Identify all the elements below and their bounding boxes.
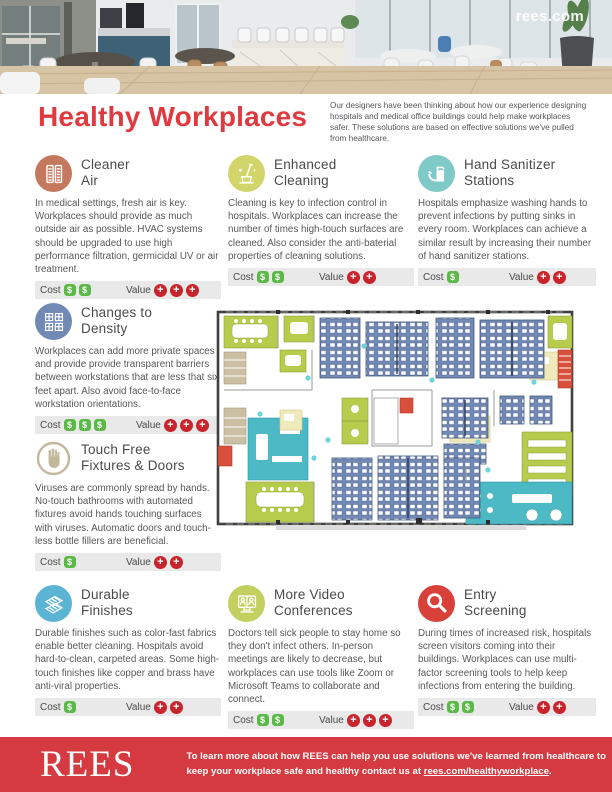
section-changes-to-density: Changes to Density Workplaces can add mo… bbox=[35, 303, 221, 434]
section-header: Durable Finishes bbox=[35, 585, 221, 622]
healthyworkplace-link[interactable]: rees.com/healthyworkplace bbox=[424, 766, 549, 777]
plus-badge: + bbox=[154, 556, 167, 569]
floor-plan bbox=[216, 306, 576, 546]
section-title: Changes to Density bbox=[81, 303, 152, 337]
dollar-badge: $ bbox=[64, 701, 76, 713]
section-video-conferences: More Video Conferences Doctors tell sick… bbox=[228, 585, 414, 729]
value-label: Value bbox=[126, 702, 151, 713]
section-title-line: Durable bbox=[81, 587, 133, 603]
section-title-line: Finishes bbox=[81, 603, 133, 619]
section-title-line: More Video bbox=[274, 587, 353, 603]
no-touch-icon bbox=[35, 440, 72, 477]
page-title: Healthy Workplaces bbox=[38, 101, 307, 133]
plus-badge: + bbox=[347, 714, 360, 727]
section-body: Viruses are commonly spread by hands. No… bbox=[35, 482, 221, 548]
section-title-line: Density bbox=[81, 321, 152, 337]
dollar-badge: $ bbox=[272, 271, 284, 283]
value-badges: ++ bbox=[154, 556, 183, 569]
value-badges: +++ bbox=[154, 284, 199, 297]
section-header: Enhanced Cleaning bbox=[228, 155, 414, 192]
cost-badges: $$ bbox=[257, 714, 284, 726]
video-conference-icon bbox=[228, 585, 265, 622]
section-header: Changes to Density bbox=[35, 303, 221, 340]
value-badges: +++ bbox=[347, 714, 392, 727]
plus-badge: + bbox=[347, 271, 360, 284]
section-title: Durable Finishes bbox=[81, 585, 133, 619]
dollar-badge: $ bbox=[64, 284, 76, 296]
section-header: Entry Screening bbox=[418, 585, 596, 622]
plus-badge: + bbox=[170, 284, 183, 297]
dollar-badge: $ bbox=[64, 419, 76, 431]
section-title-line: Fixtures & Doors bbox=[81, 458, 185, 474]
section-header: More Video Conferences bbox=[228, 585, 414, 622]
cost-badges: $$$ bbox=[64, 419, 106, 431]
section-title-line: Changes to bbox=[81, 305, 152, 321]
cost-badges: $ bbox=[64, 701, 76, 713]
value-label: Value bbox=[126, 557, 151, 568]
section-cleaner-air: Cleaner Air In medical settings, fresh a… bbox=[35, 155, 221, 299]
section-body: Doctors tell sick people to stay home so… bbox=[228, 627, 414, 706]
section-title-line: Air bbox=[81, 173, 130, 189]
section-header: Cleaner Air bbox=[35, 155, 221, 192]
rees-logo: REES bbox=[40, 746, 134, 783]
section-title-line: Enhanced bbox=[274, 157, 336, 173]
footer-message-line1: To learn more about how REES can help yo… bbox=[186, 751, 606, 762]
cleaning-icon bbox=[228, 155, 265, 192]
cost-badges: $$ bbox=[257, 271, 284, 283]
cost-label: Cost bbox=[423, 702, 444, 713]
cost-value-bar: Cost $ Value ++ bbox=[418, 268, 596, 286]
cost-label: Cost bbox=[40, 285, 61, 296]
cost-value-bar: Cost $$$ Value +++ bbox=[35, 416, 221, 434]
dollar-badge: $ bbox=[257, 714, 269, 726]
section-body: Durable finishes such as color-fast fabr… bbox=[35, 627, 221, 693]
section-body: Workplaces can add more private spaces a… bbox=[35, 345, 221, 411]
value-badges: +++ bbox=[164, 419, 209, 432]
cost-value-bar: Cost $$ Value ++ bbox=[418, 698, 596, 716]
plus-badge: + bbox=[164, 419, 177, 432]
air-filter-icon bbox=[35, 155, 72, 192]
footer-message-suffix: . bbox=[549, 766, 552, 777]
plus-badge: + bbox=[379, 714, 392, 727]
intro-paragraph: Our designers have been thinking about h… bbox=[330, 101, 588, 145]
dollar-badge: $ bbox=[64, 556, 76, 568]
section-durable-finishes: Durable Finishes Durable finishes such a… bbox=[35, 585, 221, 716]
plus-badge: + bbox=[154, 701, 167, 714]
dollar-badge: $ bbox=[447, 271, 459, 283]
cost-value-bar: Cost $$ Value +++ bbox=[228, 711, 414, 729]
value-badges: ++ bbox=[537, 271, 566, 284]
cost-label: Cost bbox=[40, 702, 61, 713]
office-photo: rees.com bbox=[0, 0, 612, 94]
section-hand-sanitizer: Hand Sanitizer Stations Hospitals emphas… bbox=[418, 155, 596, 286]
plus-badge: + bbox=[170, 556, 183, 569]
footer-message-line2: keep your workplace safe and healthy con… bbox=[186, 766, 423, 777]
section-title: Enhanced Cleaning bbox=[274, 155, 336, 189]
section-title-line: Stations bbox=[464, 173, 555, 189]
footer-message: To learn more about how REES can help yo… bbox=[186, 750, 606, 780]
footer-banner: REES To learn more about how REES can he… bbox=[0, 737, 612, 792]
cost-label: Cost bbox=[233, 715, 254, 726]
rees-watermark: rees.com bbox=[516, 8, 584, 25]
value-label: Value bbox=[509, 272, 534, 283]
cost-badges: $$ bbox=[447, 701, 474, 713]
cost-label: Cost bbox=[233, 272, 254, 283]
section-title-line: Screening bbox=[464, 603, 527, 619]
section-touch-free: Touch Free Fixtures & Doors Viruses are … bbox=[35, 440, 221, 571]
dollar-badge: $ bbox=[257, 271, 269, 283]
value-label: Value bbox=[319, 715, 344, 726]
plus-badge: + bbox=[553, 701, 566, 714]
plus-badge: + bbox=[180, 419, 193, 432]
plus-badge: + bbox=[553, 271, 566, 284]
value-label: Value bbox=[126, 285, 151, 296]
magnifier-icon bbox=[418, 585, 455, 622]
dollar-badge: $ bbox=[462, 701, 474, 713]
section-title: More Video Conferences bbox=[274, 585, 353, 619]
fabric-icon bbox=[35, 585, 72, 622]
section-body: During times of increased risk, hospital… bbox=[418, 627, 596, 693]
workstations-icon bbox=[35, 303, 72, 340]
dollar-badge: $ bbox=[272, 714, 284, 726]
plus-badge: + bbox=[363, 271, 376, 284]
cost-value-bar: Cost $$ Value ++ bbox=[228, 268, 414, 286]
section-body: Hospitals emphasize washing hands to pre… bbox=[418, 197, 596, 263]
plus-badge: + bbox=[537, 271, 550, 284]
plus-badge: + bbox=[170, 701, 183, 714]
value-badges: ++ bbox=[154, 701, 183, 714]
section-title-line: Hand Sanitizer bbox=[464, 157, 555, 173]
dollar-badge: $ bbox=[79, 419, 91, 431]
section-title-line: Cleaning bbox=[274, 173, 336, 189]
cost-label: Cost bbox=[40, 420, 61, 431]
section-enhanced-cleaning: Enhanced Cleaning Cleaning is key to inf… bbox=[228, 155, 414, 286]
cost-label: Cost bbox=[423, 272, 444, 283]
cost-label: Cost bbox=[40, 557, 61, 568]
cost-value-bar: Cost $$ Value +++ bbox=[35, 281, 221, 299]
plus-badge: + bbox=[186, 284, 199, 297]
cost-badges: $ bbox=[64, 556, 76, 568]
value-label: Value bbox=[136, 420, 161, 431]
plus-badge: + bbox=[196, 419, 209, 432]
cost-badges: $ bbox=[447, 271, 459, 283]
section-title-line: Conferences bbox=[274, 603, 353, 619]
cost-value-bar: Cost $ Value ++ bbox=[35, 553, 221, 571]
section-title: Hand Sanitizer Stations bbox=[464, 155, 555, 189]
section-title-line: Touch Free bbox=[81, 442, 185, 458]
value-label: Value bbox=[509, 702, 534, 713]
section-title: Touch Free Fixtures & Doors bbox=[81, 440, 185, 474]
plus-badge: + bbox=[537, 701, 550, 714]
section-header: Touch Free Fixtures & Doors bbox=[35, 440, 221, 477]
section-body: In medical settings, fresh air is key. W… bbox=[35, 197, 221, 276]
dollar-badge: $ bbox=[447, 701, 459, 713]
dollar-badge: $ bbox=[94, 419, 106, 431]
section-title: Entry Screening bbox=[464, 585, 527, 619]
section-entry-screening: Entry Screening During times of increase… bbox=[418, 585, 596, 716]
cost-value-bar: Cost $ Value ++ bbox=[35, 698, 221, 716]
value-label: Value bbox=[319, 272, 344, 283]
cost-badges: $$ bbox=[64, 284, 91, 296]
section-title-line: Entry bbox=[464, 587, 527, 603]
dollar-badge: $ bbox=[79, 284, 91, 296]
section-title-line: Cleaner bbox=[81, 157, 130, 173]
section-header: Hand Sanitizer Stations bbox=[418, 155, 596, 192]
sanitizer-icon bbox=[418, 155, 455, 192]
flyer-page: rees.com Healthy Workplaces Our designer… bbox=[0, 0, 612, 792]
section-body: Cleaning is key to infection control in … bbox=[228, 197, 414, 263]
plus-badge: + bbox=[154, 284, 167, 297]
section-title: Cleaner Air bbox=[81, 155, 130, 189]
value-badges: ++ bbox=[347, 271, 376, 284]
value-badges: ++ bbox=[537, 701, 566, 714]
plus-badge: + bbox=[363, 714, 376, 727]
